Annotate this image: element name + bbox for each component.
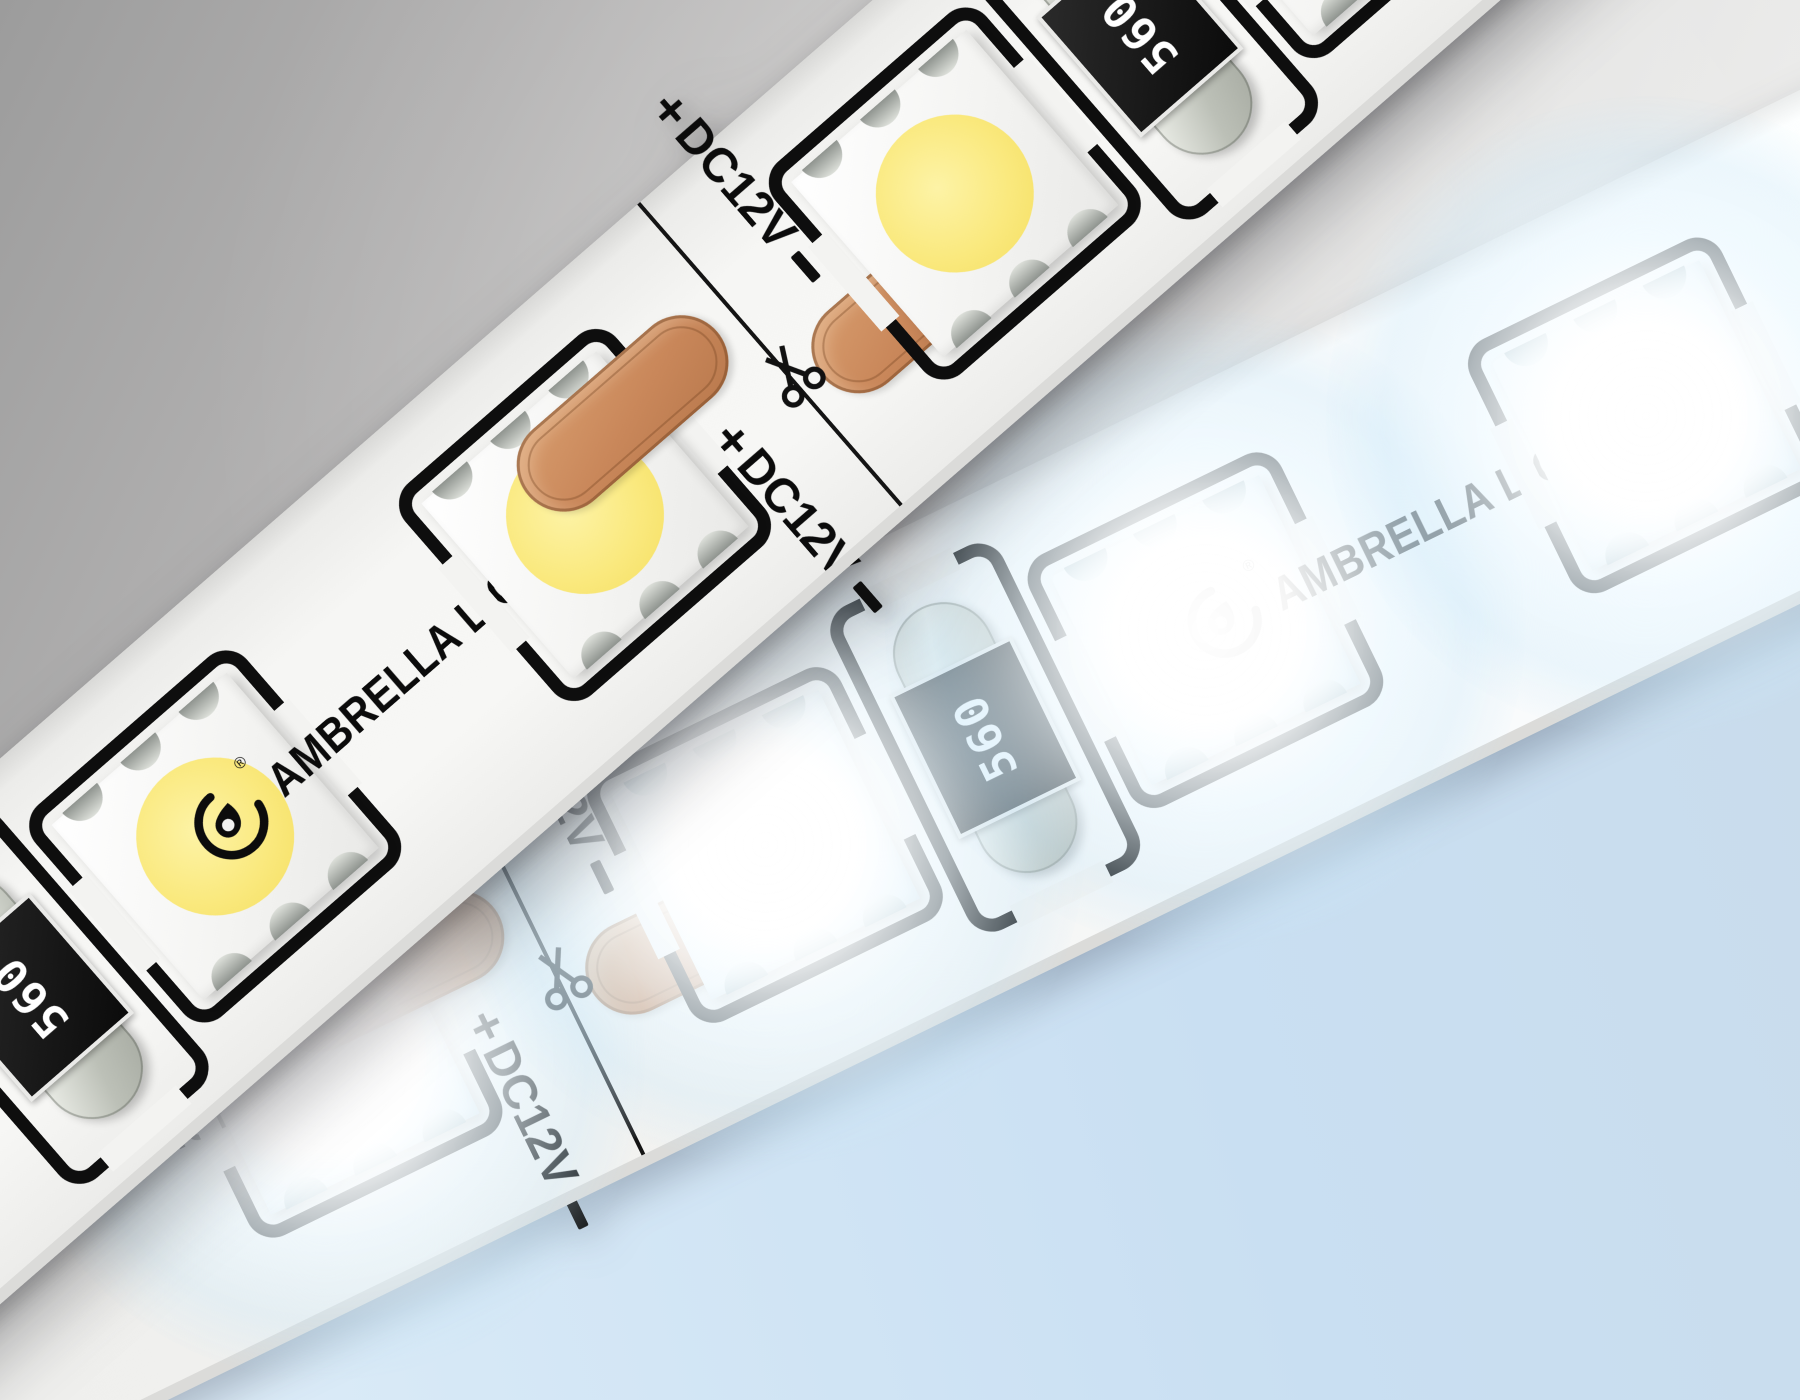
led-module: [1459, 228, 1800, 602]
led-die: [1540, 310, 1751, 521]
minus-bar: [565, 1194, 590, 1229]
led-strip-product-photo: AMBRELLA LIGHT +DC12V: [0, 0, 1800, 1400]
dc12v-label: +DC12V: [703, 412, 899, 627]
led-die: [659, 739, 870, 950]
minus-bar: [853, 580, 884, 613]
solder-pad: [497, 296, 747, 531]
